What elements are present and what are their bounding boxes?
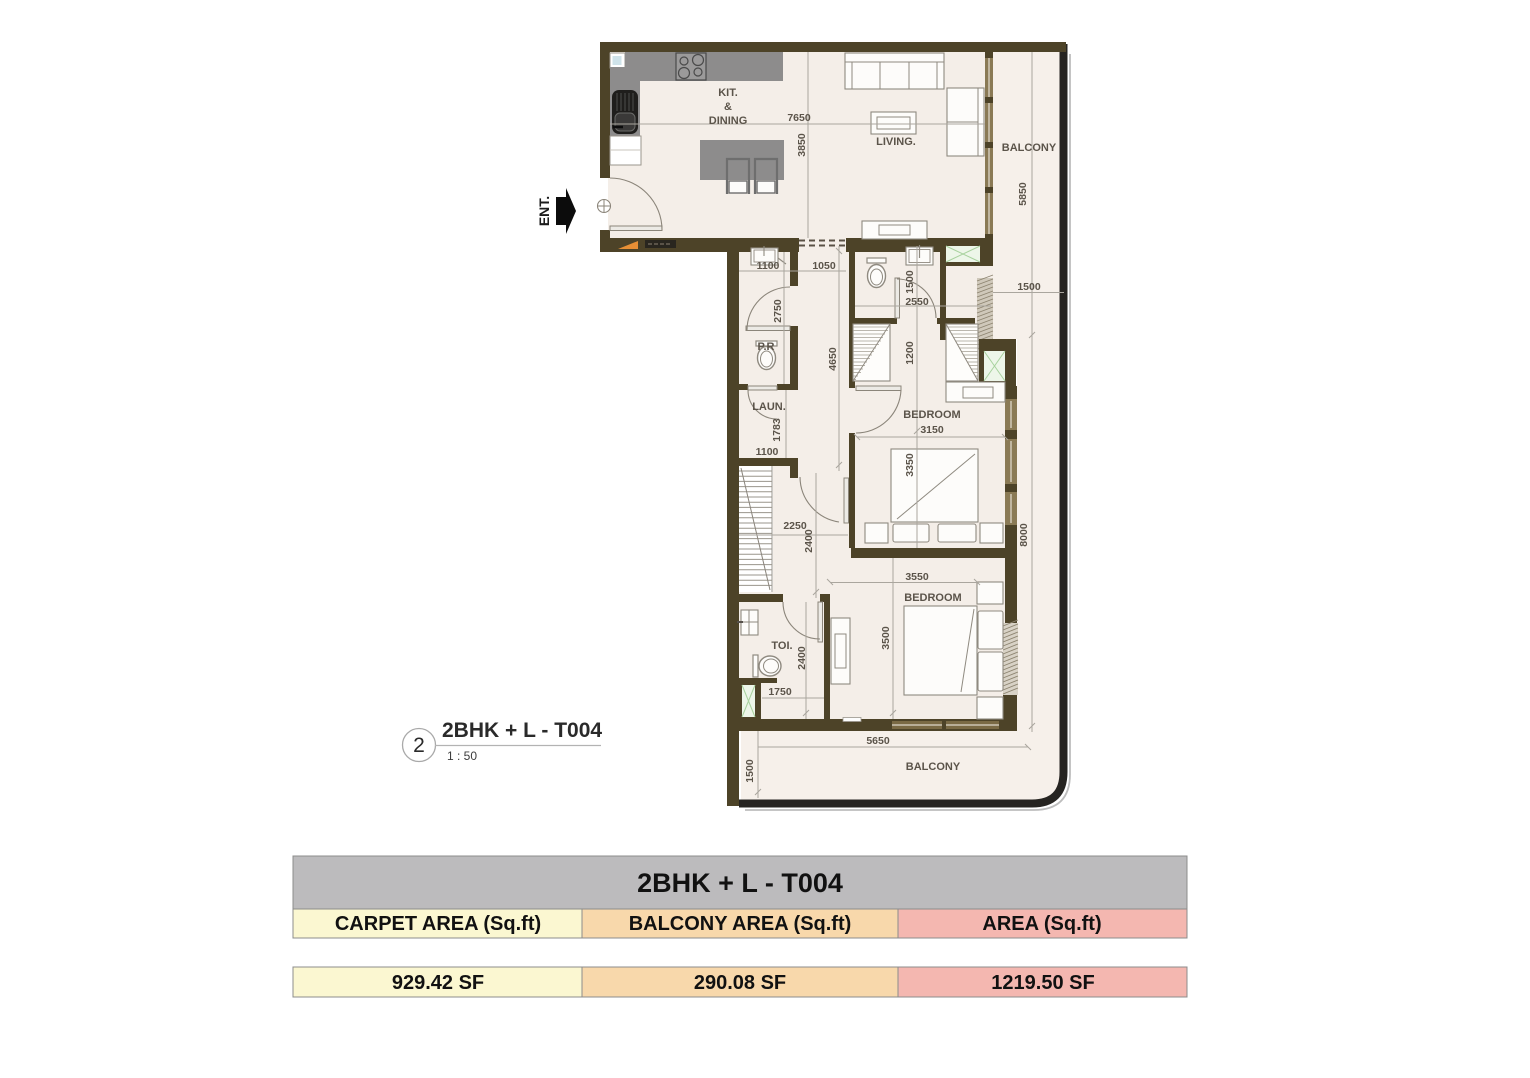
svg-text:2BHK + L - T004: 2BHK + L - T004: [442, 719, 602, 742]
svg-text:CARPET AREA (Sq.ft): CARPET AREA (Sq.ft): [335, 913, 541, 935]
svg-text:1100: 1100: [756, 446, 779, 458]
svg-text:290.08 SF: 290.08 SF: [694, 972, 786, 994]
svg-text:3150: 3150: [920, 424, 944, 436]
svg-text:2750: 2750: [772, 299, 784, 323]
svg-text:BALCONY: BALCONY: [906, 761, 961, 773]
svg-text:3500: 3500: [880, 626, 892, 650]
svg-text:P.R: P.R: [758, 341, 775, 353]
svg-text:KIT.: KIT.: [718, 87, 738, 99]
svg-text:1750: 1750: [768, 686, 792, 698]
svg-text:3850: 3850: [796, 133, 808, 157]
svg-text:1 : 50: 1 : 50: [447, 749, 477, 763]
svg-text:1783: 1783: [771, 418, 783, 442]
svg-text:2400: 2400: [803, 529, 815, 553]
svg-text:3350: 3350: [904, 453, 916, 477]
svg-text:AREA (Sq.ft): AREA (Sq.ft): [982, 913, 1101, 935]
svg-text:BEDROOM: BEDROOM: [903, 409, 960, 421]
svg-text:LIVING.: LIVING.: [876, 136, 916, 148]
svg-text:&: &: [724, 101, 732, 113]
svg-text:1100: 1100: [757, 260, 780, 272]
svg-text:ENT.: ENT.: [536, 196, 552, 226]
svg-text:BALCONY: BALCONY: [1002, 142, 1057, 154]
svg-text:LAUN.: LAUN.: [752, 401, 786, 413]
svg-text:DINING: DINING: [709, 115, 748, 127]
svg-text:2400: 2400: [796, 646, 808, 670]
svg-text:1500: 1500: [744, 759, 756, 783]
svg-text:1500: 1500: [1017, 281, 1041, 293]
svg-text:5650: 5650: [866, 735, 890, 747]
svg-text:TOI.: TOI.: [771, 640, 792, 652]
svg-text:BALCONY AREA (Sq.ft): BALCONY AREA (Sq.ft): [629, 913, 852, 935]
svg-text:1200: 1200: [904, 341, 916, 365]
svg-text:4650: 4650: [827, 347, 839, 371]
svg-text:3550: 3550: [905, 571, 929, 583]
svg-text:5850: 5850: [1017, 182, 1029, 206]
svg-text:2BHK + L - T004: 2BHK + L - T004: [637, 868, 843, 898]
svg-text:2: 2: [413, 734, 425, 757]
svg-text:8000: 8000: [1018, 523, 1030, 547]
svg-text:1500: 1500: [904, 270, 916, 294]
svg-text:7650: 7650: [787, 112, 811, 124]
svg-text:BEDROOM: BEDROOM: [904, 592, 961, 604]
svg-text:1050: 1050: [812, 260, 836, 272]
svg-text:1219.50 SF: 1219.50 SF: [991, 972, 1094, 994]
svg-text:929.42 SF: 929.42 SF: [392, 972, 484, 994]
svg-text:2550: 2550: [905, 296, 929, 308]
